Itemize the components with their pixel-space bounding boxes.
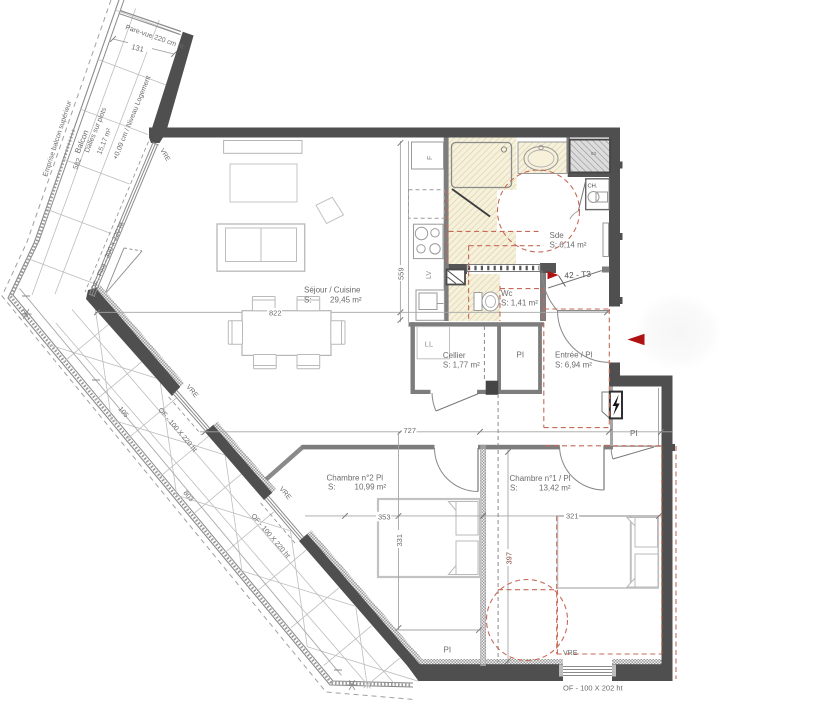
svg-text:Sde: Sde — [550, 231, 565, 240]
svg-text:F: F — [427, 156, 434, 160]
svg-text:Wc: Wc — [501, 289, 513, 298]
svg-text:10,99 m²: 10,99 m² — [355, 483, 387, 492]
svg-text:42 - T3: 42 - T3 — [564, 269, 592, 281]
svg-text:Chambre n°2 Pl: Chambre n°2 Pl — [327, 474, 384, 483]
svg-text:LL: LL — [425, 340, 433, 349]
svg-text:727: 727 — [404, 426, 417, 435]
svg-text:Entrée / Pl: Entrée / Pl — [555, 351, 593, 360]
svg-text:559: 559 — [397, 267, 406, 280]
svg-text:LV: LV — [426, 271, 433, 279]
svg-text:S:: S: — [304, 296, 312, 305]
svg-text:CH.: CH. — [588, 184, 598, 190]
svg-text:Séjour / Cuisine: Séjour / Cuisine — [304, 286, 361, 295]
svg-text:S: 6,94 m²: S: 6,94 m² — [555, 361, 592, 370]
svg-text:321: 321 — [566, 512, 579, 521]
svg-text:PI: PI — [517, 351, 525, 360]
svg-text:S:: S: — [510, 484, 518, 493]
svg-text:331: 331 — [395, 534, 404, 547]
svg-text:OF - 100 X 202 ht: OF - 100 X 202 ht — [563, 684, 624, 693]
svg-text:S: 1,41 m²: S: 1,41 m² — [501, 299, 538, 308]
svg-text:VRE: VRE — [563, 650, 578, 657]
svg-text:63: 63 — [591, 151, 597, 156]
svg-text:397: 397 — [505, 552, 514, 565]
svg-text:13,42 m²: 13,42 m² — [539, 484, 571, 493]
svg-text:353: 353 — [378, 512, 391, 521]
svg-text:PI: PI — [444, 646, 452, 655]
svg-text:29,45 m²: 29,45 m² — [330, 296, 362, 305]
svg-text:S:: S: — [328, 483, 336, 492]
svg-text:822: 822 — [269, 309, 282, 318]
svg-text:S: 1,77 m²: S: 1,77 m² — [443, 361, 480, 370]
svg-text:S: 6,14 m²: S: 6,14 m² — [550, 241, 587, 250]
svg-text:Chambre n°1 / Pl: Chambre n°1 / Pl — [510, 474, 571, 483]
svg-text:Cellier: Cellier — [443, 351, 466, 360]
svg-text:PI: PI — [630, 429, 638, 438]
